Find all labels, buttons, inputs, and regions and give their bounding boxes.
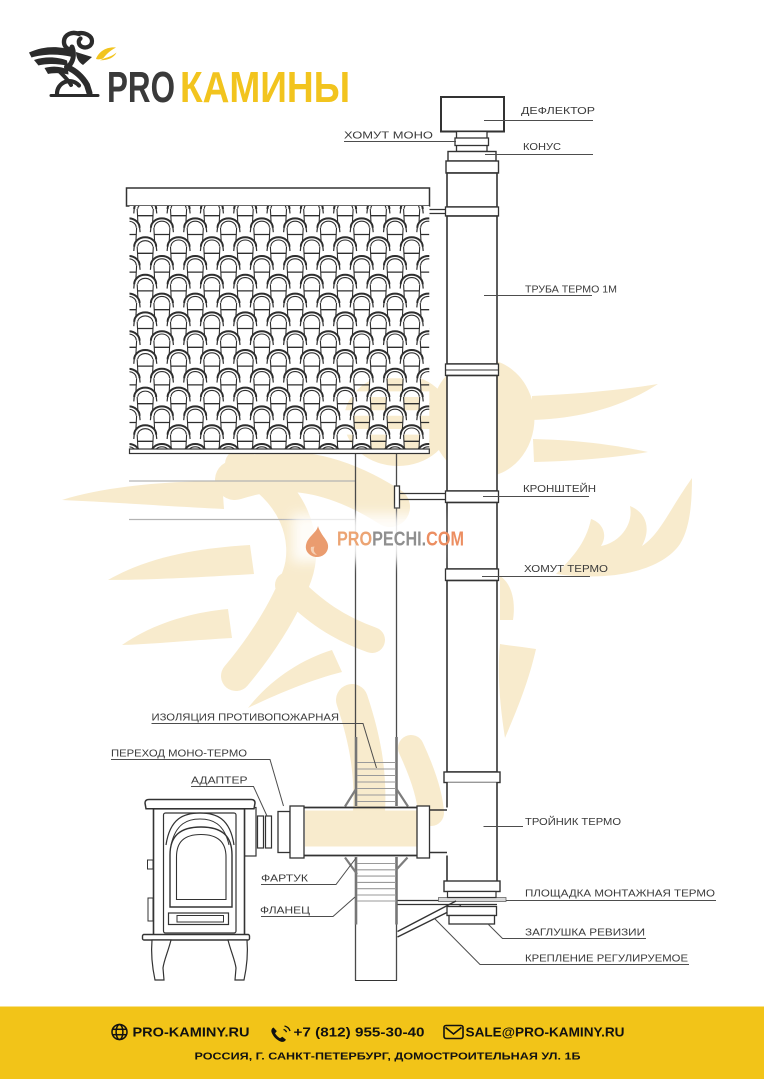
svg-text:ПЕРЕХОД МОНО-ТЕРМО: ПЕРЕХОД МОНО-ТЕРМО — [111, 748, 247, 760]
svg-text:ПЛОЩАДКА МОНТАЖНАЯ ТЕРМО: ПЛОЩАДКА МОНТАЖНАЯ ТЕРМО — [525, 888, 715, 900]
svg-text:ЗАГЛУШКА РЕВИЗИИ: ЗАГЛУШКА РЕВИЗИИ — [525, 927, 645, 939]
svg-text:КРОНШТЕЙН: КРОНШТЕЙН — [523, 482, 596, 495]
svg-text:PRO-KAMINY.RU: PRO-KAMINY.RU — [133, 1025, 250, 1040]
svg-text:ХОМУТ ТЕРМО: ХОМУТ ТЕРМО — [524, 563, 608, 575]
svg-text:КОНУС: КОНУС — [523, 141, 561, 153]
svg-text:КРЕПЛЕНИЕ РЕГУЛИРУЕМОЕ: КРЕПЛЕНИЕ РЕГУЛИРУЕМОЕ — [525, 953, 688, 965]
svg-text:АДАПТЕР: АДАПТЕР — [191, 775, 248, 787]
svg-text:SALE@PRO-KAMINY.RU: SALE@PRO-KAMINY.RU — [466, 1025, 625, 1040]
svg-text:ДЕФЛЕКТОР: ДЕФЛЕКТОР — [521, 105, 595, 117]
svg-text:ИЗОЛЯЦИЯ ПРОТИВОПОЖАРНАЯ: ИЗОЛЯЦИЯ ПРОТИВОПОЖАРНАЯ — [152, 712, 340, 724]
svg-text:ХОМУТ МОНО: ХОМУТ МОНО — [344, 130, 433, 142]
svg-text:РОССИЯ, Г. САНКТ-ПЕТЕРБУРГ, ДО: РОССИЯ, Г. САНКТ-ПЕТЕРБУРГ, ДОМОСТРОИТЕЛ… — [195, 1051, 582, 1063]
svg-text:ТРУБА ТЕРМО 1М: ТРУБА ТЕРМО 1М — [525, 284, 617, 296]
svg-text:ФЛАНЕЦ: ФЛАНЕЦ — [260, 905, 310, 917]
svg-text:+7 (812) 955-30-40: +7 (812) 955-30-40 — [294, 1025, 425, 1040]
svg-text:ТРОЙНИК ТЕРМО: ТРОЙНИК ТЕРМО — [525, 815, 621, 828]
svg-text:PROКАМИНЫ: PROКАМИНЫ — [107, 63, 350, 112]
svg-text:PROPECHI.COM: PROPECHI.COM — [337, 529, 464, 551]
svg-text:ФАРТУК: ФАРТУК — [261, 873, 309, 885]
